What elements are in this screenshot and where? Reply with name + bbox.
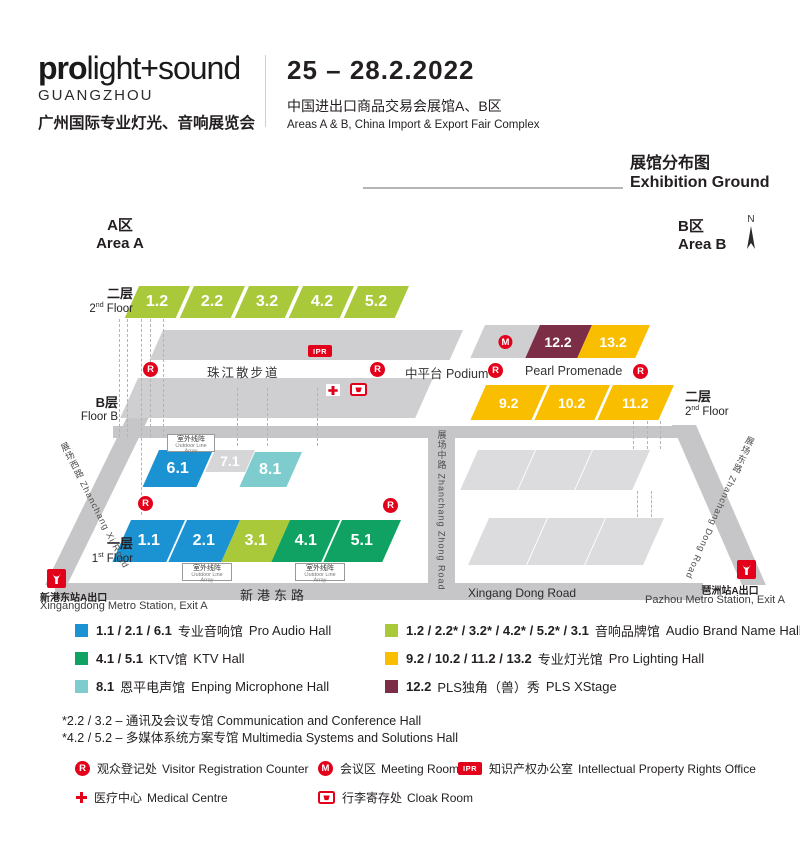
area-a-label: A区Area A	[90, 217, 150, 253]
legend-audio-brand: 1.2 / 2.2* / 3.2* / 4.2* / 5.2* / 3.1音响品…	[385, 621, 800, 640]
swatch-yellow	[385, 652, 398, 665]
meeting-marker: M	[318, 761, 333, 776]
road-name-south-en: Xingang Dong Road	[468, 586, 576, 600]
event-info: 25 – 28.2.2022 中国进出口商品交易会展馆A、B区 Areas A …	[287, 55, 539, 131]
footnote-2: *4.2 / 5.2 – 多媒体系统方案专馆 Multimedia System…	[62, 727, 458, 746]
podium-label: 中平台 Podium	[405, 363, 488, 382]
registration-marker: R	[633, 364, 648, 379]
registration-marker: R	[488, 363, 503, 378]
cloak-icon	[350, 383, 367, 396]
halls-2f-area-a: 1.2 2.2 3.2 4.2 5.2	[125, 286, 409, 318]
swatch-blue	[75, 624, 88, 637]
area-b-hall-block-lower	[468, 518, 664, 565]
hall-5-2: 5.2	[344, 286, 409, 318]
logo-cn-title: 广州国际专业灯光、音响展览会	[38, 111, 255, 133]
dashed-line	[651, 491, 652, 517]
swatch-green	[75, 652, 88, 665]
dashed-line	[317, 388, 318, 446]
meeting-marker: M	[498, 335, 512, 349]
hall-2-2: 2.2	[180, 286, 245, 318]
registration-marker: R	[370, 362, 385, 377]
legend-pro-lighting: 9.2 / 10.2 / 11.2 / 13.2专业灯光馆Pro Lightin…	[385, 649, 704, 668]
building-a-upper	[150, 330, 463, 360]
zhujiang-promenade-label: 珠江散步道	[207, 362, 280, 381]
halls-2f-area-b-bottom: 9.2 10.2 11.2	[470, 385, 674, 420]
legend-pro-audio: 1.1 / 2.1 / 6.1专业音响馆Pro Audio Hall	[75, 621, 331, 640]
legend-pls-xstage: 12.2PLS独角（兽）秀PLS XStage	[385, 677, 617, 696]
facility-registration: R 观众登记处Visitor Registration Counter	[75, 760, 309, 777]
dashed-line	[647, 421, 648, 449]
ipr-badge: IPR	[458, 762, 482, 775]
cloak-icon	[318, 791, 335, 804]
dashed-line	[660, 421, 661, 449]
registration-marker: R	[383, 498, 398, 513]
logo-rest: light+sound	[87, 50, 241, 86]
area-b-label: B区Area B	[678, 218, 726, 254]
legend-enping-microphone: 8.1恩平电声馆Enping Microphone Hall	[75, 677, 329, 696]
hall-6-1: 6.1	[143, 450, 213, 487]
swatch-yellow-green	[385, 624, 398, 637]
north-indicator: N	[744, 214, 758, 256]
metro-icon	[737, 560, 756, 579]
dashed-line	[127, 319, 128, 437]
floor-b-label: B层 Floor B	[62, 396, 118, 424]
metro-left-en: Xingangdong Metro Station, Exit A	[40, 600, 208, 612]
header-divider	[265, 55, 266, 127]
outdoor-line-array-box: 室外线阵 Outdoor Line Array	[167, 434, 215, 452]
exhibition-ground-map-page: prolight+sound GUANGZHOU 广州国际专业灯光、音响展览会 …	[0, 0, 800, 847]
dashed-line	[237, 388, 238, 446]
floor2-label-right: 二层 2nd Floor	[685, 390, 745, 419]
registration-marker: R	[75, 761, 90, 776]
registration-marker: R	[138, 496, 153, 511]
dashed-line	[150, 319, 151, 437]
dashed-line	[267, 388, 268, 446]
halls-2f-area-b-top: M 12.2 13.2	[470, 325, 650, 358]
medical-icon	[326, 384, 340, 396]
road-name-south-cn: 新港东路	[240, 585, 308, 604]
hall-11-2: 11.2	[598, 385, 674, 420]
pearl-promenade-label: Pearl Promenade	[525, 364, 622, 378]
metro-icon	[47, 569, 66, 588]
ipr-badge: IPR	[308, 345, 332, 357]
facility-cloak: 行李寄存处Cloak Room	[318, 789, 473, 806]
section-title-en: Exhibition Ground	[630, 173, 780, 192]
north-arrow-icon	[744, 225, 758, 251]
event-dates: 25 – 28.2.2022	[287, 55, 539, 86]
logo-city: GUANGZHOU	[38, 87, 255, 104]
facility-meeting: M 会议区Meeting Room	[318, 760, 459, 777]
halls-1f-area-a: 1.1 2.1 3.1 4.1 5.1	[112, 520, 401, 562]
floor2-label-left: 二层 2nd Floor	[77, 287, 133, 316]
swatch-teal	[75, 680, 88, 693]
outdoor-line-array-box: 室外线阵 Outdoor Line Array	[295, 563, 345, 581]
dashed-line	[119, 319, 120, 437]
north-label: N	[744, 214, 758, 225]
road-name-mid: 展场中路 Zhanchang Zhong Road	[429, 440, 455, 580]
hall-4-2: 4.2	[289, 286, 354, 318]
dashed-line	[633, 421, 634, 449]
hall-3-2: 3.2	[234, 286, 299, 318]
medical-cross-icon	[76, 792, 87, 803]
logo: prolight+sound GUANGZHOU 广州国际专业灯光、音响展览会	[38, 52, 255, 133]
venue-cn: 中国进出口商品交易会展馆A、B区	[287, 96, 539, 116]
dashed-line	[141, 319, 142, 515]
hall-1-2: 1.2	[125, 286, 190, 318]
outdoor-line-array-box: 室外线阵 Outdoor Line Array	[182, 563, 232, 581]
legend-ktv: 4.1 / 5.1KTV馆KTV Hall	[75, 649, 245, 668]
area-b-hall-block-upper	[460, 450, 650, 490]
metro-right-en: Pazhou Metro Station, Exit A	[645, 594, 785, 606]
venue-en: Areas A & B, China Import & Export Fair …	[287, 119, 539, 131]
facility-medical: 医疗中心Medical Centre	[76, 789, 228, 806]
building-a-lower	[120, 378, 433, 418]
xingang-dong-road	[55, 583, 703, 600]
logo-pro: pro	[38, 50, 87, 86]
registration-marker: R	[143, 362, 158, 377]
dashed-line	[637, 491, 638, 517]
swatch-maroon	[385, 680, 398, 693]
section-title: 展馆分布图 Exhibition Ground	[630, 154, 780, 192]
section-title-cn: 展馆分布图	[630, 154, 780, 173]
dashed-line	[163, 319, 164, 437]
facility-ipr: IPR 知识产权办公室Intellectual Property Rights …	[458, 760, 756, 777]
title-rule	[363, 187, 623, 189]
